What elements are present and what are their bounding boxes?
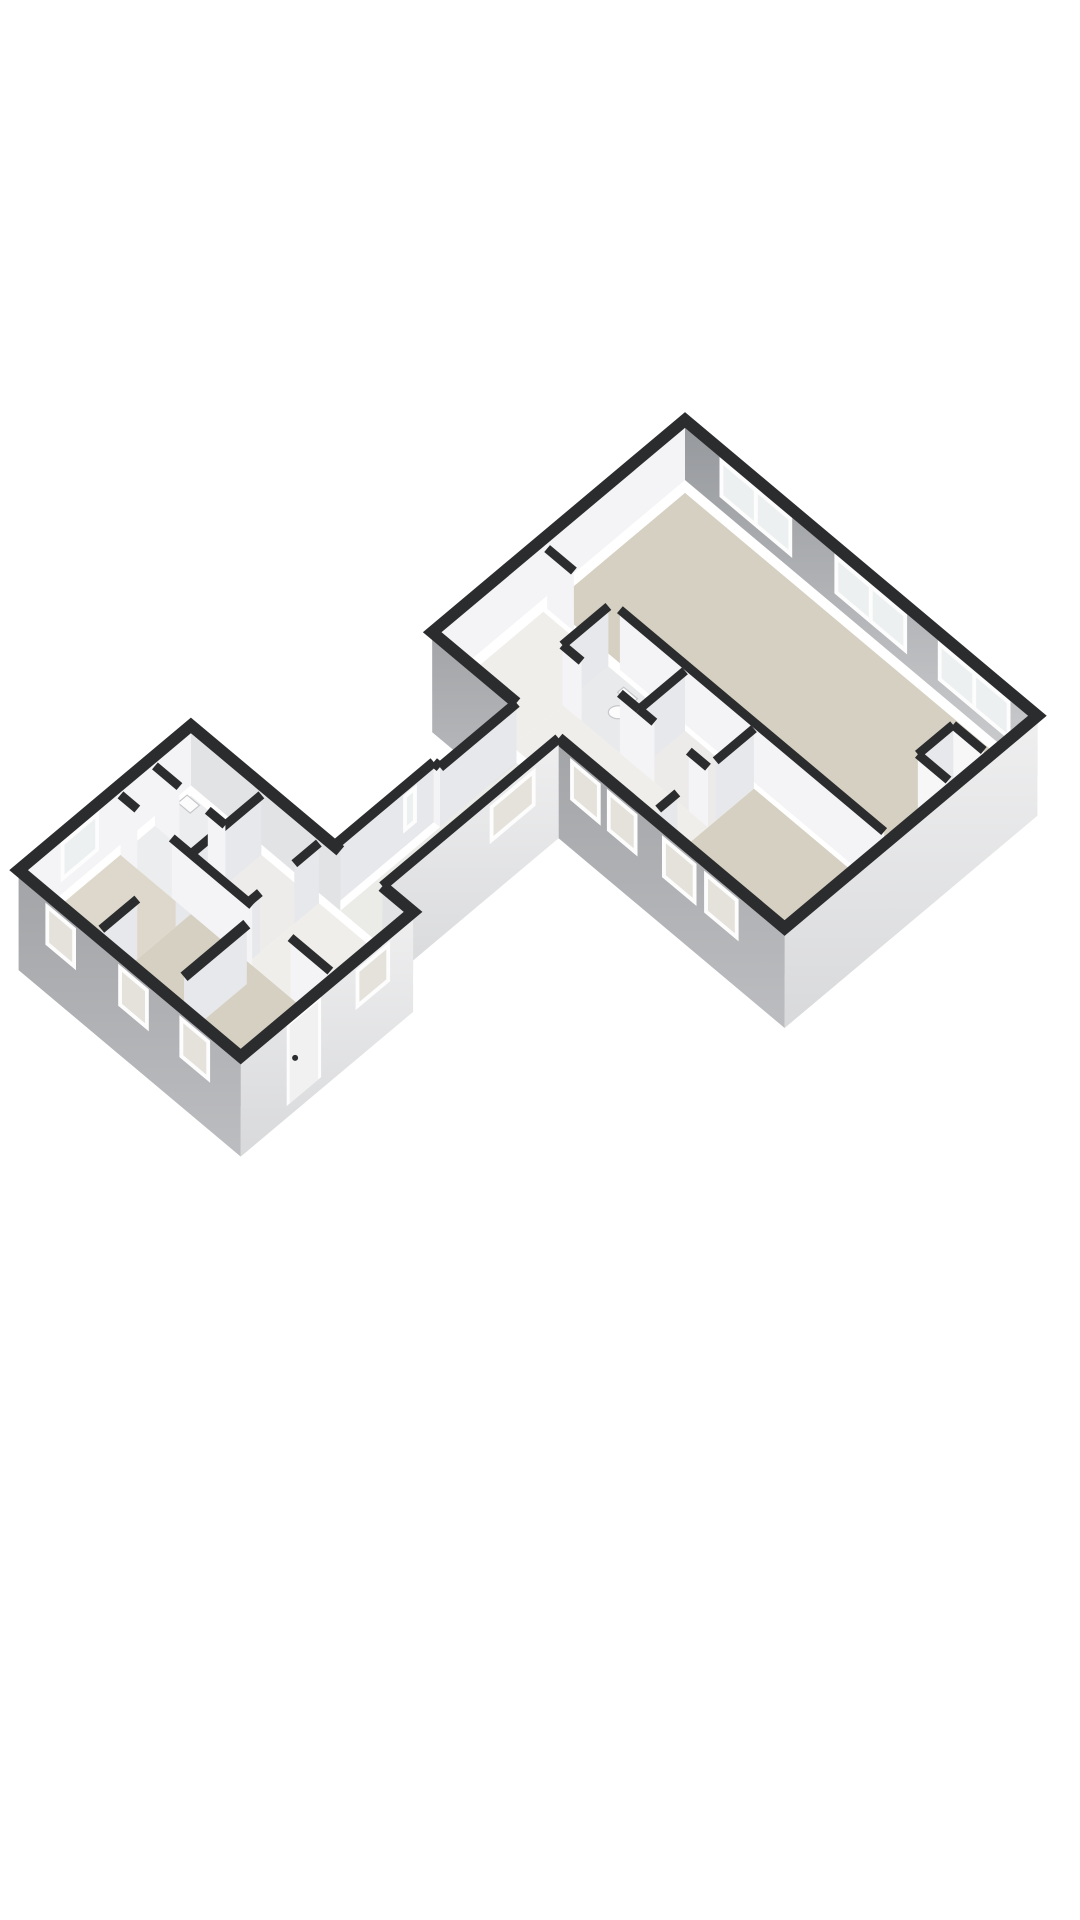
main-wing-northeast-facade-inner-window-1-mullion <box>869 584 873 623</box>
main-wing-northeast-facade-inner-window-0-mullion <box>754 488 758 527</box>
floor-plan-canvas <box>0 0 1080 1920</box>
floor-plan-scene <box>19 420 1038 1157</box>
main-wing-northeast-facade-inner-window-2-mullion <box>972 671 976 710</box>
connector-corridor-corridor-wall-nw-b-window-0-glass <box>407 792 413 825</box>
street-wing-se-facade-outer-door-handle <box>292 1055 298 1061</box>
connector-corridor-corridor-wall-jog-face <box>434 762 440 827</box>
floor-plan-viewport <box>0 0 1080 1920</box>
